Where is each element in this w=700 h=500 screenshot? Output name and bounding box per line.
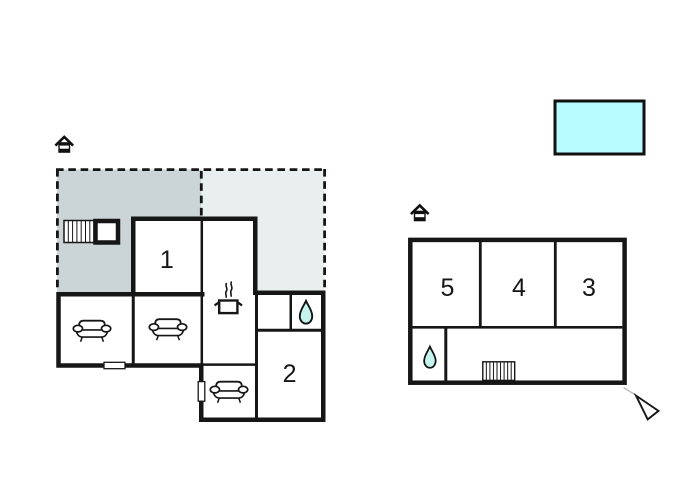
svg-text:5: 5 xyxy=(440,274,454,302)
svg-text:2: 2 xyxy=(283,360,297,388)
svg-text:1: 1 xyxy=(160,246,174,274)
svg-text:3: 3 xyxy=(582,274,596,302)
svg-text:4: 4 xyxy=(512,274,526,302)
